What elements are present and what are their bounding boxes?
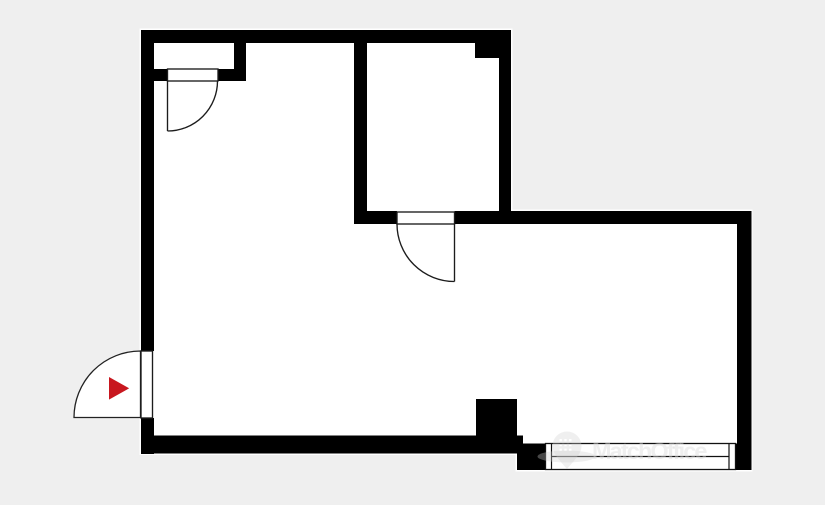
svg-text:MatchOffice: MatchOffice xyxy=(592,438,707,464)
